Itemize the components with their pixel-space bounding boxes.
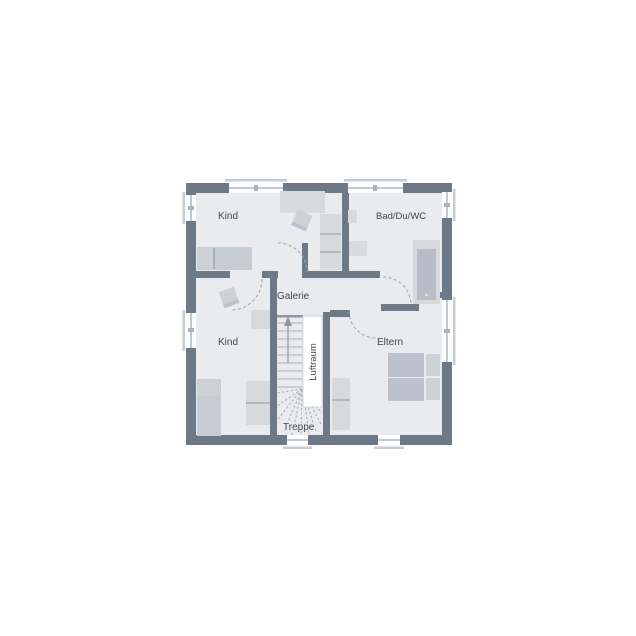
toilet <box>348 210 357 223</box>
closet-kind-top <box>320 214 341 270</box>
label-treppe: Treppe <box>283 422 315 433</box>
window-bottom-right <box>374 435 404 449</box>
bed-pillow-kind-top <box>198 248 213 269</box>
window-top-left <box>225 179 287 193</box>
window-left-upper <box>183 192 197 224</box>
bed-pillow-eltern <box>426 378 440 400</box>
interior-wall-bath-left <box>342 193 349 271</box>
stair-opening-edge <box>277 315 303 318</box>
washbasin <box>349 241 367 256</box>
interior-wall-stairwell-right <box>323 312 330 435</box>
window-right-upper <box>442 189 456 221</box>
window-bottom-left <box>283 435 312 449</box>
floorplan-page: Kind Bad/Du/WC Galerie Kind Eltern Trepp… <box>0 0 636 636</box>
interior-wall-eltern-top <box>381 304 413 311</box>
wardrobe-eltern <box>332 378 350 430</box>
window-top-right <box>344 179 407 193</box>
label-room-galerie: Galerie <box>277 291 310 302</box>
label-luftraum: Luftraum <box>308 343 319 381</box>
label-room-kind-top: Kind <box>218 211 238 222</box>
exterior-wall-bottom <box>186 435 452 445</box>
cabinet-kind-bottom <box>251 310 270 329</box>
interior-wall <box>302 271 380 278</box>
interior-wall-stairwell-left <box>270 278 277 435</box>
bathtub <box>413 240 440 304</box>
label-room-bad: Bad/Du/WC <box>376 211 426 222</box>
bed-pillow-eltern <box>426 354 440 376</box>
bed-pillow-kind-bottom <box>198 380 220 396</box>
label-room-kind-bottom: Kind <box>218 337 238 348</box>
interior-wall-eltern-topleft <box>330 310 350 317</box>
window-right-lower <box>442 297 456 365</box>
window-left-lower <box>183 310 197 351</box>
label-room-eltern: Eltern <box>377 337 403 348</box>
wardrobe-kind-top <box>280 191 325 213</box>
interior-wall <box>196 271 230 278</box>
interior-wall <box>262 271 278 278</box>
